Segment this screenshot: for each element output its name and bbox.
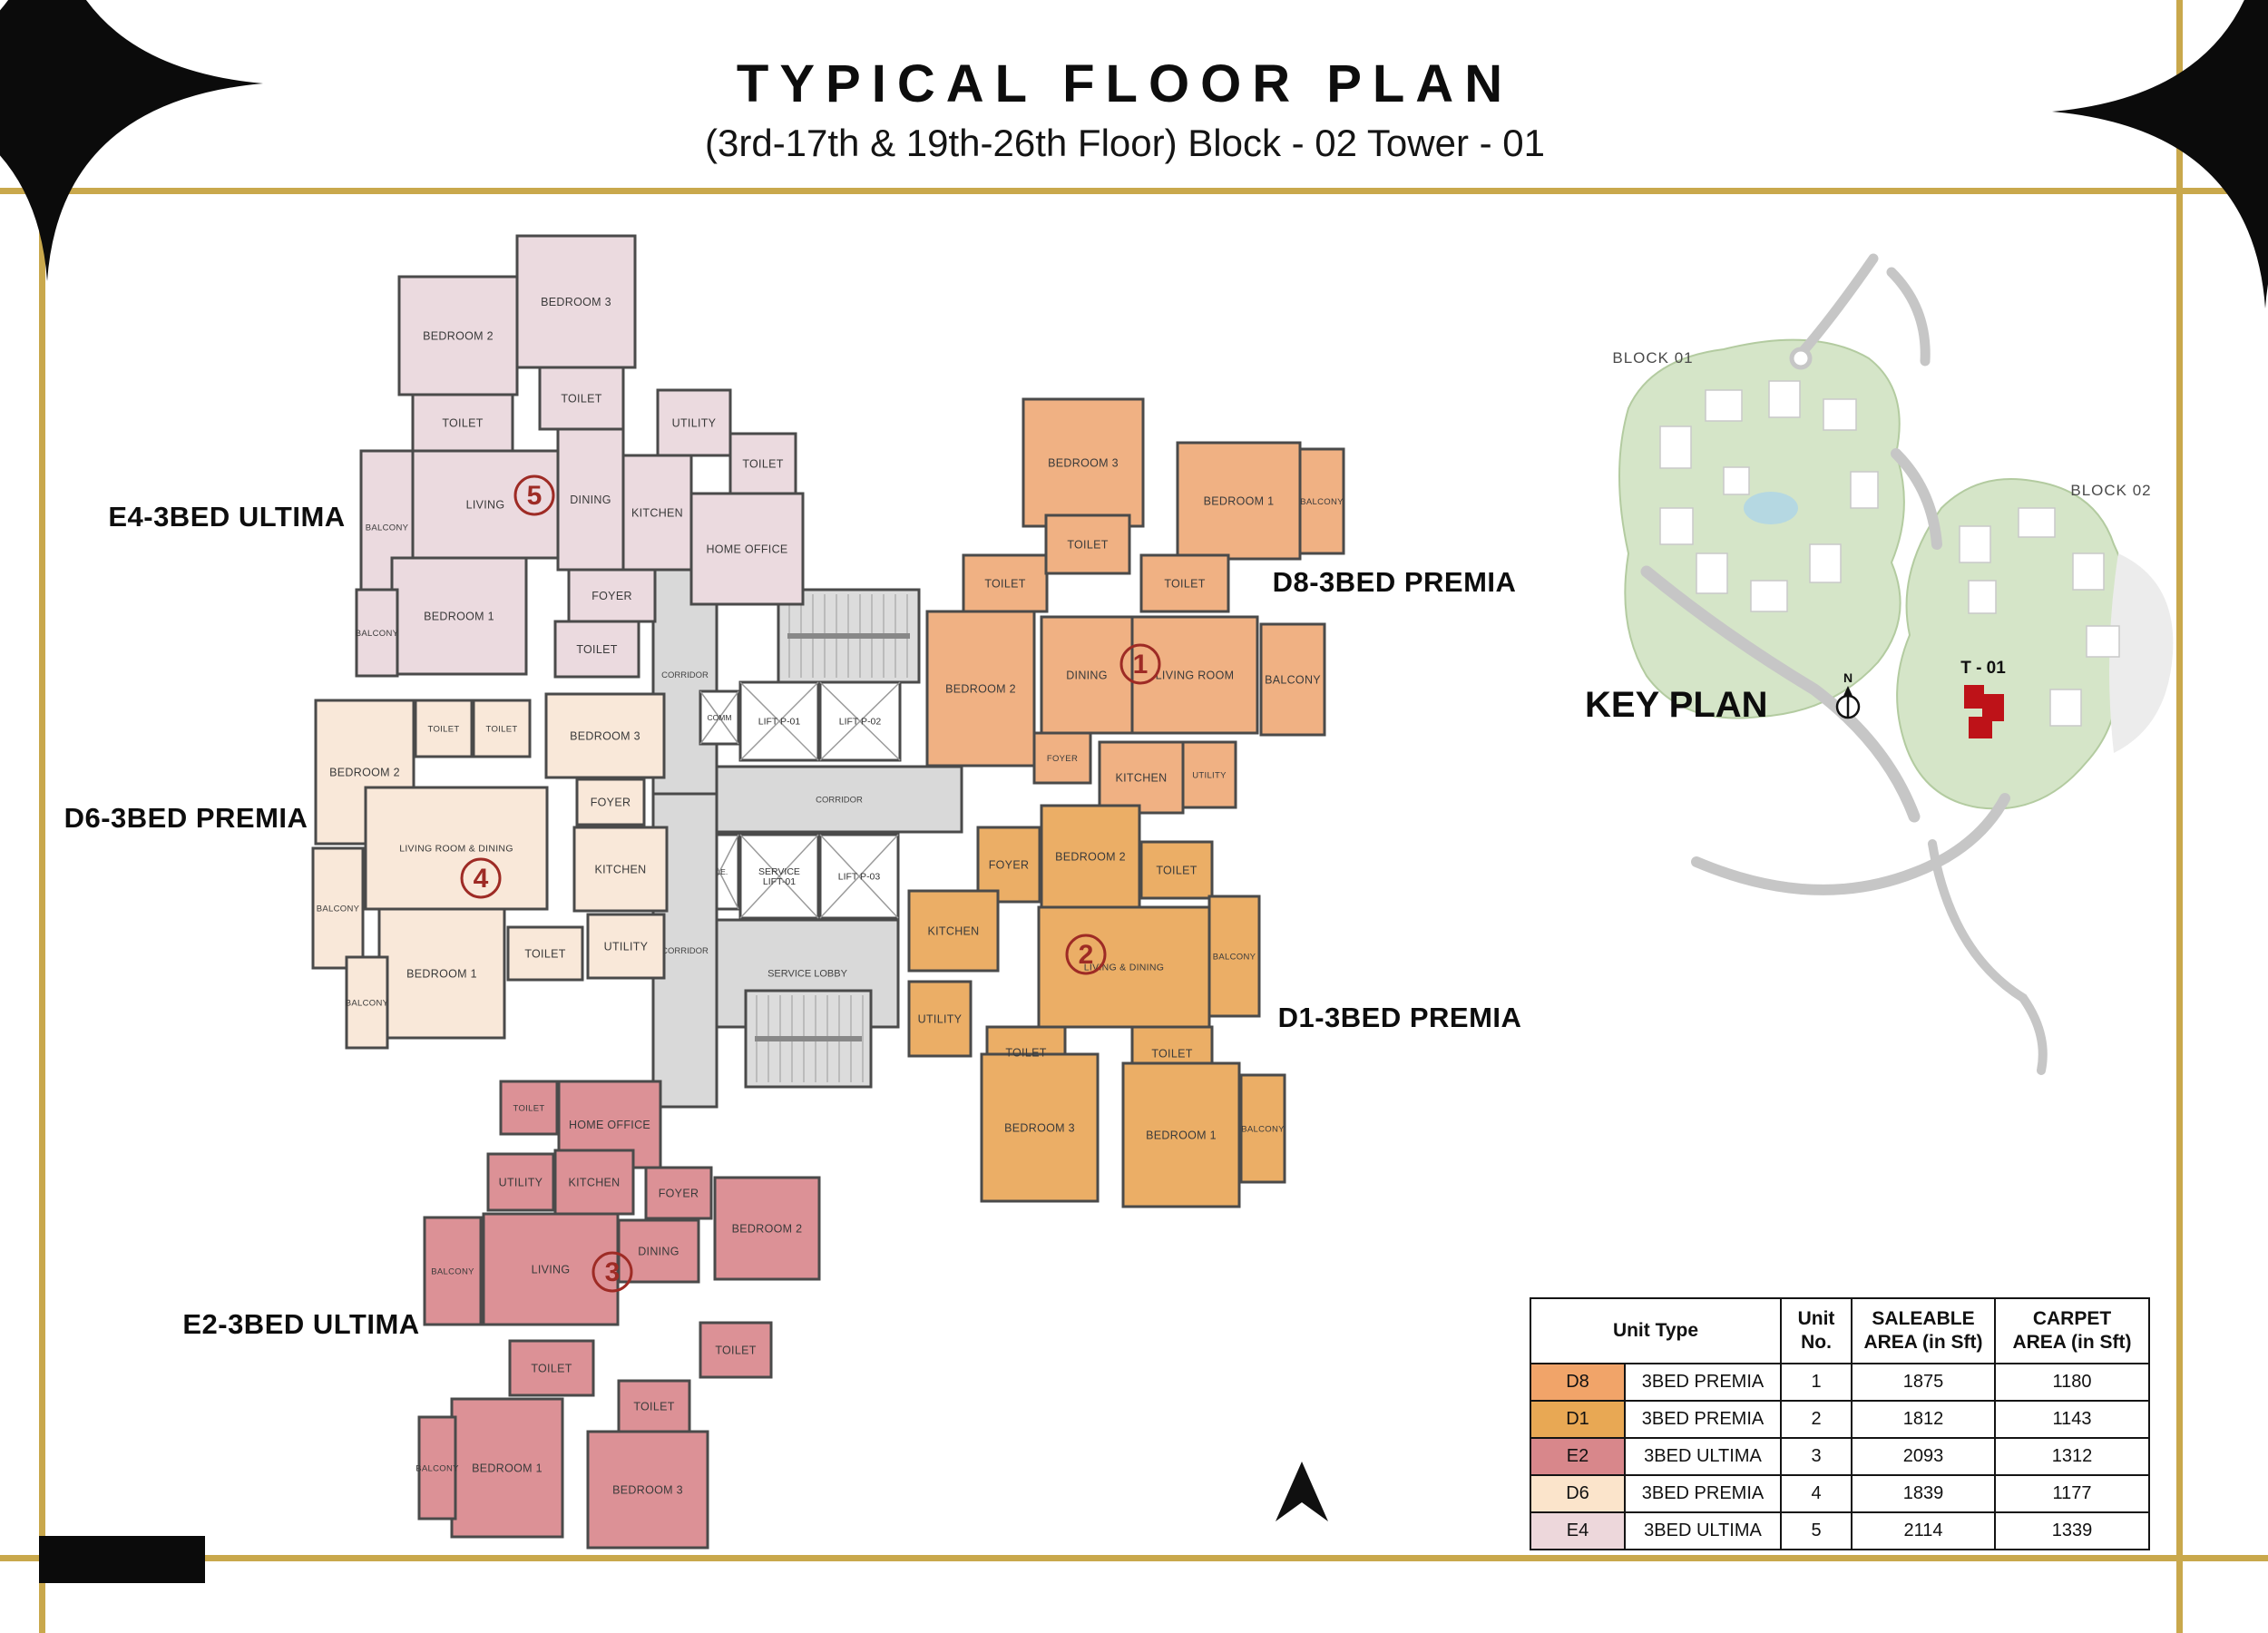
room-label: BALCONY — [1265, 673, 1321, 686]
footer-black-bar — [39, 1536, 205, 1583]
room-label: BEDROOM 3 — [541, 296, 611, 308]
room-label: BALCONY — [356, 629, 399, 639]
north-arrow-icon — [1276, 1462, 1328, 1521]
header-unit-type: Unit Type — [1530, 1298, 1781, 1364]
cell-carpet-area: 1312 — [1995, 1438, 2149, 1475]
room-label: BEDROOM 1 — [424, 610, 494, 622]
key-plan: BLOCK 01 BLOCK 02 T - 01 KEY PLAN N — [1585, 259, 2173, 1071]
road — [1696, 798, 2005, 890]
pond — [1744, 492, 1798, 524]
room-label: TOILET — [633, 1400, 674, 1413]
cell-carpet-area: 1180 — [1995, 1364, 2149, 1401]
room-label: BEDROOM 2 — [945, 682, 1016, 695]
unit-label-D1: D1-3BED PREMIA — [1278, 1002, 1522, 1033]
room-label: KITCHEN — [1116, 771, 1168, 784]
page-subtitle: (3rd-17th & 19th-26th Floor) Block - 02 … — [705, 122, 1545, 164]
unit-E2: TOILETHOME OFFICEUTILITYKITCHENFOYERBEDR… — [182, 1081, 819, 1548]
core-lift: LIFT P-01 — [740, 682, 818, 760]
room-label: BALCONY — [1241, 1124, 1285, 1134]
cell-saleable-area: 2114 — [1852, 1512, 1995, 1550]
room-label: TOILET — [1164, 577, 1205, 590]
road — [1932, 844, 2043, 1071]
core-lift: SERVICELIFT-01 — [740, 835, 818, 918]
cell-unit-name: 3BED ULTIMA — [1625, 1438, 1781, 1475]
room-label: FOYER — [1047, 754, 1078, 764]
north-letter: N — [1843, 670, 1853, 685]
unit-number: 3 — [605, 1257, 621, 1287]
cell-unit-code: D1 — [1530, 1401, 1625, 1438]
room-label: BEDROOM 1 — [472, 1462, 543, 1474]
table-row: E43BED ULTIMA521141339 — [1530, 1512, 2149, 1550]
room-label: KITCHEN — [631, 506, 683, 519]
area-statement-table: Unit Type Unit No. SALEABLE AREA (in Sft… — [1530, 1297, 2150, 1550]
unit-D8: BEDROOM 3BEDROOM 1BALCONYTOILETTOILETTOI… — [927, 399, 1516, 813]
room-label: TOILET — [531, 1362, 572, 1374]
unit-D6: BEDROOM 2TOILETTOILETBEDROOM 3FOYERBALCO… — [64, 694, 667, 1048]
room-label: UTILITY — [918, 1012, 963, 1025]
cell-unit-no: 3 — [1781, 1438, 1852, 1475]
header-unit-no: Unit No. — [1781, 1298, 1852, 1364]
cell-unit-no: 5 — [1781, 1512, 1852, 1550]
cell-unit-name: 3BED PREMIA — [1625, 1475, 1781, 1512]
room-label: BALCONY — [317, 904, 360, 914]
cell-carpet-area: 1143 — [1995, 1401, 2149, 1438]
room-label: HOME OFFICE — [706, 543, 787, 555]
room-label: TOILET — [561, 392, 601, 405]
cell-saleable-area: 2093 — [1852, 1438, 1995, 1475]
unit-number: 2 — [1079, 940, 1094, 970]
room-label: TOILET — [442, 416, 483, 429]
room-label: TOILET — [576, 643, 617, 656]
core-area-label: SERVICE LOBBY — [767, 969, 847, 980]
room-label: UTILITY — [499, 1176, 543, 1188]
room-label: BEDROOM 3 — [570, 729, 640, 742]
frame-line-top — [0, 188, 2268, 194]
cell-unit-no: 2 — [1781, 1401, 1852, 1438]
room-label: BALCONY — [346, 998, 389, 1008]
core-area: CORRIDOR — [717, 767, 962, 832]
cell-unit-code: D6 — [1530, 1475, 1625, 1512]
room-label: HOME OFFICE — [569, 1119, 650, 1131]
room-label: DINING — [570, 494, 611, 506]
room-label: LIVING ROOM & DINING — [399, 844, 513, 855]
road — [1801, 259, 1873, 354]
unit-label-E4: E4-3BED ULTIMA — [108, 501, 345, 533]
table-row: E23BED ULTIMA320931312 — [1530, 1438, 2149, 1475]
room-label: KITCHEN — [928, 924, 980, 937]
key-plan-map — [1619, 259, 2173, 1071]
cell-unit-name: 3BED PREMIA — [1625, 1364, 1781, 1401]
core-lift: LIFT P-02 — [820, 682, 900, 760]
room-label: TOILET — [1067, 538, 1108, 551]
table-row: D63BED PREMIA418391177 — [1530, 1475, 2149, 1512]
unit-label-E2: E2-3BED ULTIMA — [182, 1308, 419, 1340]
unit-number: 5 — [527, 481, 543, 511]
block-02-label: BLOCK 02 — [2070, 482, 2151, 499]
cell-saleable-area: 1839 — [1852, 1475, 1995, 1512]
room-label: TOILET — [742, 457, 783, 470]
lift-label: COMM — [708, 713, 732, 722]
core-area-label: CORRIDOR — [661, 946, 709, 956]
room-label: BEDROOM 2 — [423, 329, 494, 342]
room-label: FOYER — [989, 858, 1030, 871]
room-label: TOILET — [715, 1344, 756, 1356]
table-row: D13BED PREMIA218121143 — [1530, 1401, 2149, 1438]
room-label: TOILET — [984, 577, 1025, 590]
block-01-label: BLOCK 01 — [1612, 349, 1693, 367]
room-label: UTILITY — [672, 416, 717, 429]
cell-unit-name: 3BED ULTIMA — [1625, 1512, 1781, 1550]
room-label: FOYER — [659, 1187, 699, 1199]
sparkle-top-right-icon — [2052, 0, 2268, 308]
room-label: LIVING — [466, 498, 505, 511]
cell-unit-code: E4 — [1530, 1512, 1625, 1550]
header-saleable-area: SALEABLE AREA (in Sft) — [1852, 1298, 1995, 1364]
room-label: LIVING ROOM — [1156, 669, 1235, 681]
key-plan-title: KEY PLAN — [1585, 685, 1768, 725]
room-label: KITCHEN — [569, 1176, 621, 1188]
table-header-row: Unit Type Unit No. SALEABLE AREA (in Sft… — [1530, 1298, 2149, 1364]
room-label: TOILET — [513, 1103, 545, 1113]
lift-label: LIFT P-03 — [838, 872, 881, 883]
page-title: TYPICAL FLOOR PLAN — [737, 54, 1513, 113]
core-area-label: CORRIDOR — [661, 670, 709, 680]
lift-label: LIFT P-02 — [839, 717, 882, 728]
road — [1892, 272, 1925, 361]
core-lift: LIFT P-03 — [820, 835, 898, 918]
core-lift: COMM — [700, 691, 738, 744]
roundabout — [1792, 349, 1810, 367]
core-stair — [746, 991, 871, 1087]
room-label: BEDROOM 1 — [1146, 1129, 1217, 1141]
room-label: FOYER — [591, 796, 631, 808]
room-label: BALCONY — [415, 1463, 459, 1473]
unit-label-D6: D6-3BED PREMIA — [64, 802, 308, 834]
room-label: TOILET — [428, 724, 460, 734]
room-label: UTILITY — [604, 940, 649, 953]
frame-line-right — [2176, 0, 2183, 1633]
cell-unit-no: 1 — [1781, 1364, 1852, 1401]
room-label: BALCONY — [1300, 497, 1344, 507]
room-label: BALCONY — [1213, 952, 1256, 962]
room-label: TOILET — [524, 947, 565, 960]
room-label: TOILET — [1156, 864, 1197, 876]
room-label: DINING — [1066, 669, 1108, 681]
room-label: BEDROOM 3 — [1048, 456, 1119, 469]
room-label: BALCONY — [431, 1266, 474, 1276]
room-label: BEDROOM 2 — [732, 1222, 803, 1235]
unit-label-D8: D8-3BED PREMIA — [1273, 566, 1517, 598]
room-label: BEDROOM 3 — [1004, 1121, 1075, 1134]
room-label: LIVING — [532, 1263, 571, 1276]
room-label: KITCHEN — [595, 863, 647, 875]
cell-unit-name: 3BED PREMIA — [1625, 1401, 1781, 1438]
room-label: BEDROOM 3 — [612, 1483, 683, 1496]
cell-carpet-area: 1339 — [1995, 1512, 2149, 1550]
room-label: UTILITY — [1192, 770, 1227, 780]
unit-number: 4 — [474, 864, 489, 894]
room-label: DINING — [638, 1245, 679, 1257]
room-label: FOYER — [591, 590, 632, 602]
room-label: TOILET — [1151, 1047, 1192, 1060]
cell-unit-code: D8 — [1530, 1364, 1625, 1401]
tower-t01-label: T - 01 — [1960, 659, 2006, 678]
room-label: BEDROOM 1 — [1204, 494, 1275, 507]
lift-label: LIFT P-01 — [758, 717, 801, 728]
cell-unit-no: 4 — [1781, 1475, 1852, 1512]
cell-unit-code: E2 — [1530, 1438, 1625, 1475]
cell-saleable-area: 1812 — [1852, 1401, 1995, 1438]
unit-D1: FOYERBEDROOM 2TOILETKITCHENLIVING & DINI… — [909, 806, 1521, 1207]
room-label: BEDROOM 1 — [406, 967, 477, 980]
room-label: TOILET — [1005, 1046, 1046, 1059]
cell-carpet-area: 1177 — [1995, 1475, 2149, 1512]
room-label: TOILET — [486, 724, 518, 734]
room-label: BEDROOM 2 — [329, 766, 400, 778]
cell-saleable-area: 1875 — [1852, 1364, 1995, 1401]
unit-number: 1 — [1133, 650, 1149, 680]
core-area-label: CORRIDOR — [816, 796, 863, 806]
table-row: D83BED PREMIA118751180 — [1530, 1364, 2149, 1401]
frame-line-bottom — [0, 1555, 2268, 1561]
floor-plan-page: TYPICAL FLOOR PLAN (3rd-17th & 19th-26th… — [0, 0, 2268, 1633]
room-label: BALCONY — [366, 523, 409, 533]
header-carpet-area: CARPET AREA (in Sft) — [1995, 1298, 2149, 1364]
room-label: BEDROOM 2 — [1055, 850, 1126, 863]
lift-label: SERVICELIFT-01 — [758, 866, 800, 887]
